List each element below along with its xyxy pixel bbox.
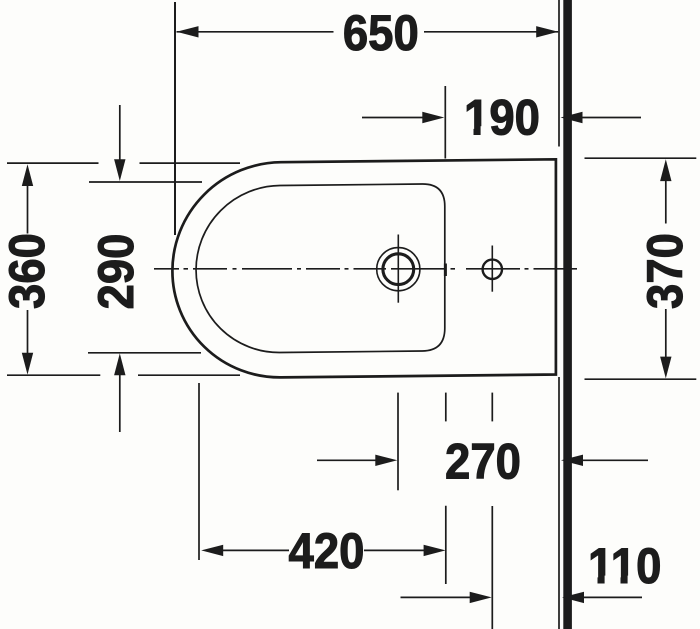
svg-text:270: 270 (445, 435, 521, 490)
svg-text:420: 420 (289, 524, 365, 579)
svg-text:360: 360 (0, 233, 55, 309)
svg-text:110: 110 (588, 539, 661, 594)
svg-text:190: 190 (464, 90, 540, 145)
svg-text:650: 650 (343, 6, 419, 61)
svg-text:370: 370 (638, 233, 693, 309)
svg-text:290: 290 (89, 234, 144, 310)
